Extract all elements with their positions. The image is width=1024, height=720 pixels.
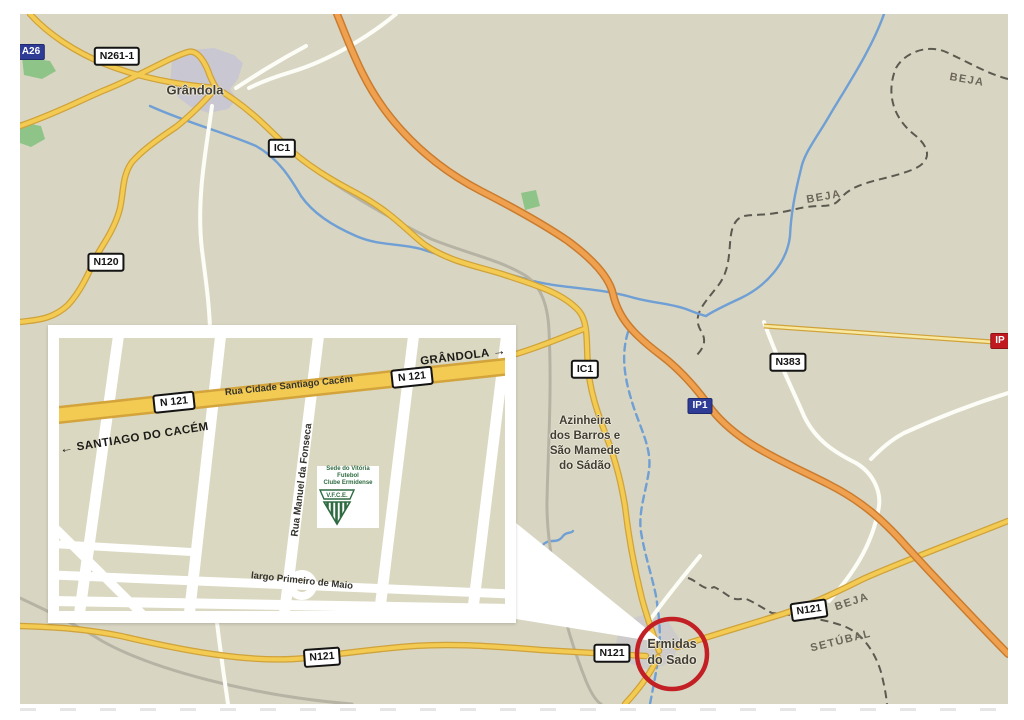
road-badge-n383: N383: [769, 353, 806, 372]
azinheira-line-4: do Sádão: [550, 459, 620, 474]
club-logo-line-1: Sede do Vitória Futebol: [317, 466, 379, 480]
road-badge-ip1: IP1: [687, 398, 712, 414]
forest-areas: [20, 57, 540, 210]
town-label-ermidas: Ermidas do Sado: [647, 636, 696, 668]
inset-map-content: Rua Cidade Santiago Cacém N 121 N 121 GR…: [59, 338, 505, 611]
club-logo: Sede do Vitória Futebol Clube Ermidense …: [317, 466, 379, 528]
arrow-right-icon: →: [492, 342, 505, 359]
map-canvas: Grândola Azinheira dos Barros e São Mame…: [20, 14, 1008, 704]
arrow-left-icon: ←: [59, 439, 74, 456]
road-badge-n120: N120: [87, 253, 124, 272]
inset-pointer-triangle: [516, 523, 664, 643]
club-crest-icon: V.F.C.E.: [317, 488, 357, 528]
town-label-grandola: Grândola: [166, 83, 223, 98]
azinheira-line-3: São Mamede: [550, 444, 620, 459]
azinheira-line-1: Azinheira: [550, 414, 620, 429]
road-badge-n121-center: N121: [593, 644, 630, 663]
road-badge-n261-1: N261-1: [94, 47, 140, 66]
club-logo-line-2: Clube Ermidense: [317, 480, 379, 487]
ermidas-line-2: do Sado: [647, 652, 696, 668]
inset-vector-layer: [59, 338, 505, 611]
road-badge-n121-west: N121: [303, 646, 341, 667]
road-badge-ip-edge: IP: [990, 333, 1008, 349]
bottom-dash-strip: [20, 708, 1008, 711]
azinheira-line-2: dos Barros e: [550, 429, 620, 444]
inset-detail-map: Rua Cidade Santiago Cacém N 121 N 121 GR…: [48, 325, 516, 623]
club-crest-initials: V.F.C.E.: [326, 493, 348, 499]
map-screenshot: Grândola Azinheira dos Barros e São Mame…: [0, 0, 1024, 720]
road-badge-a26: A26: [20, 44, 45, 60]
road-badge-ic1-north: IC1: [268, 139, 296, 158]
road-badge-ic1-south: IC1: [571, 360, 599, 379]
town-label-azinheira: Azinheira dos Barros e São Mamede do Sád…: [550, 414, 620, 474]
ermidas-line-1: Ermidas: [647, 636, 696, 652]
yellow-road-top-right: [764, 326, 1008, 343]
